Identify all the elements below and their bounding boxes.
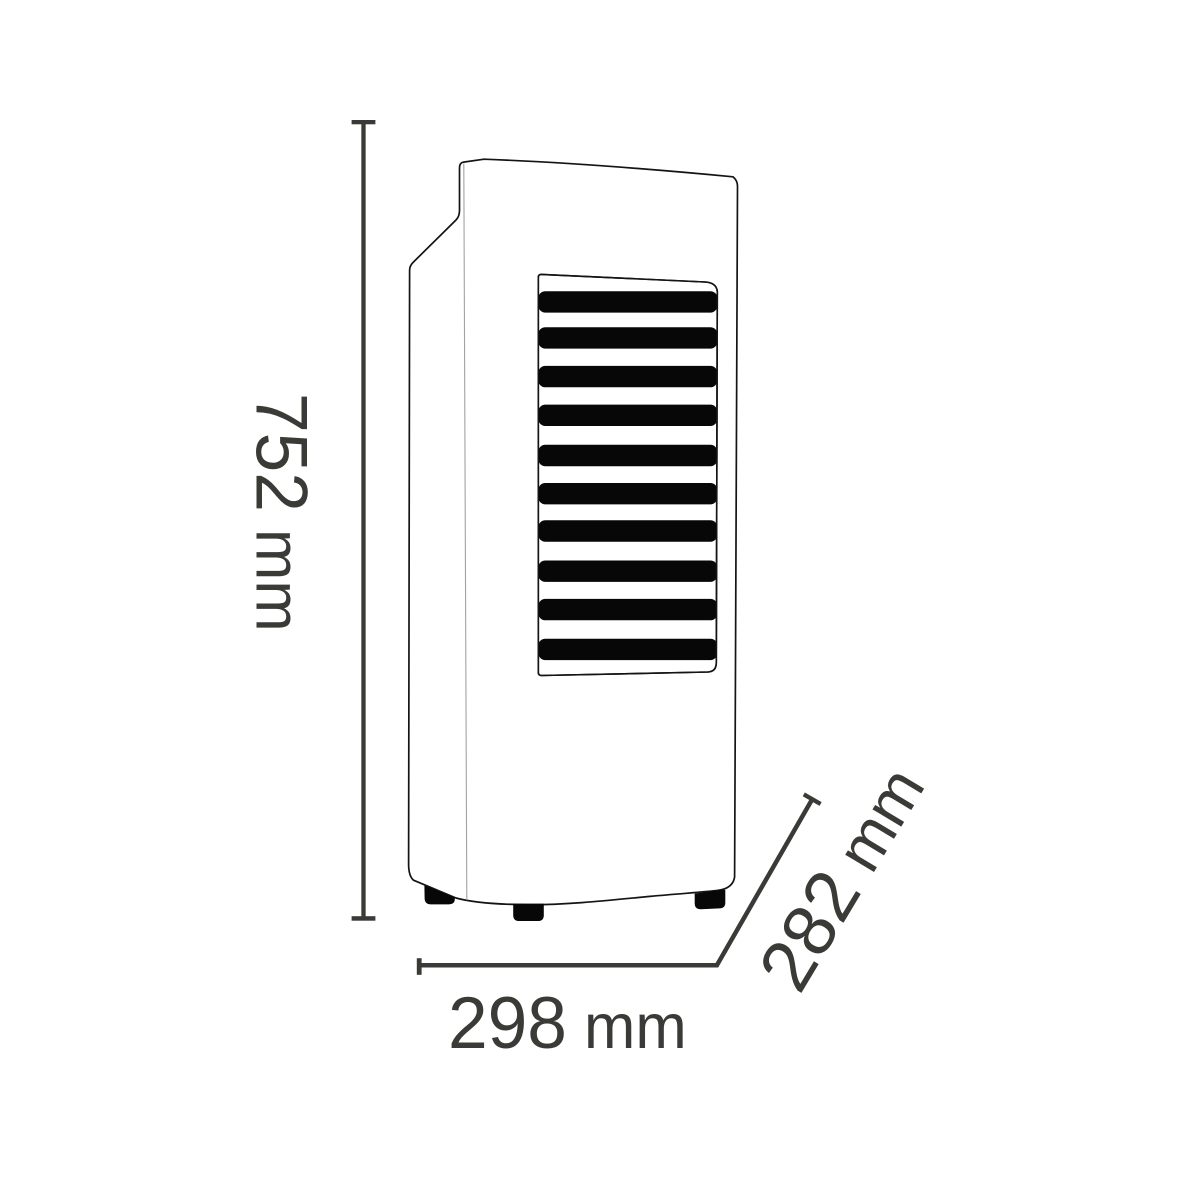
svg-text:298 mm: 298 mm xyxy=(448,982,687,1064)
svg-text:752 mm: 752 mm xyxy=(240,393,322,632)
